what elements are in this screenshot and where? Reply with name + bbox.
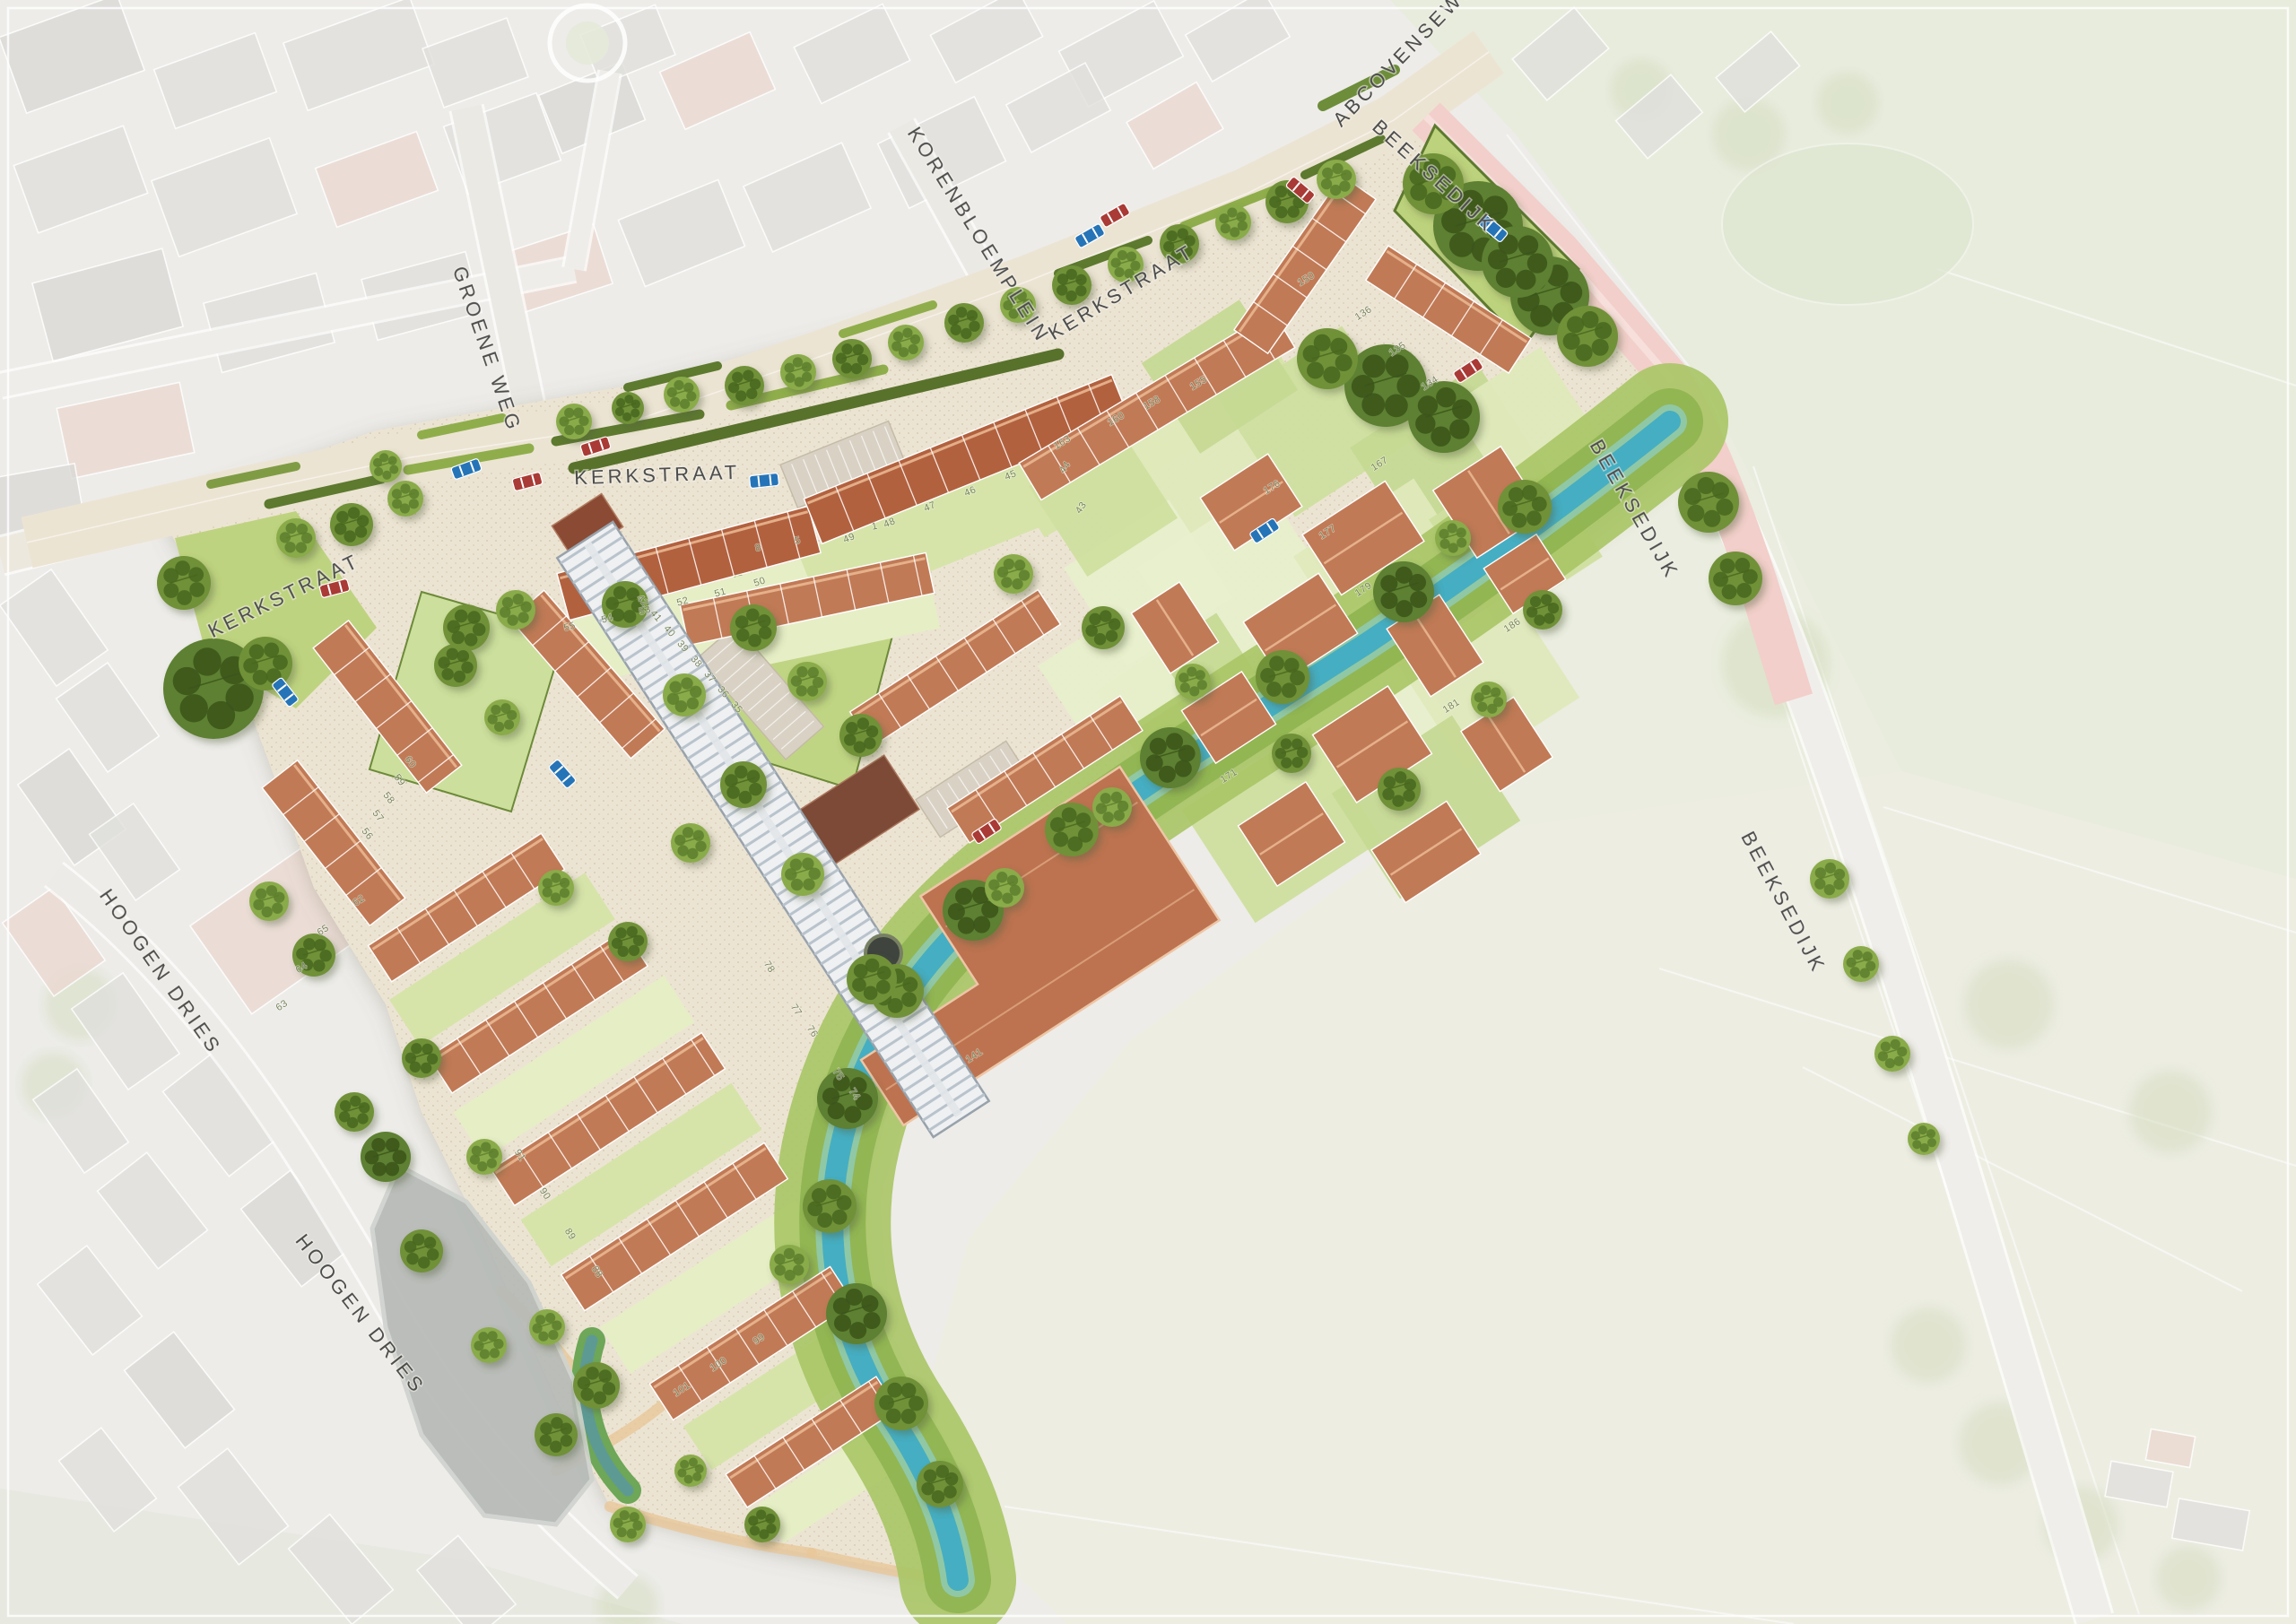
map-shape: [564, 408, 574, 418]
map-shape: [1166, 733, 1183, 750]
map-shape: [540, 1422, 552, 1434]
map-shape: [692, 1472, 701, 1481]
map-shape: [674, 835, 685, 846]
map-shape: [743, 370, 753, 381]
map-shape: [841, 343, 852, 354]
tree-icon: [573, 1362, 620, 1409]
tree-icon: [944, 303, 984, 343]
map-shape: [365, 1151, 379, 1165]
map-shape: [551, 892, 561, 902]
map-shape: [560, 888, 570, 898]
map-shape: [1418, 395, 1438, 415]
map-shape: [899, 347, 909, 357]
map-shape: [846, 722, 857, 734]
map-shape: [1736, 583, 1752, 598]
map-shape: [1100, 793, 1111, 803]
map-shape: [1275, 186, 1287, 197]
tree-icon: [1052, 265, 1091, 305]
map-shape: [1509, 487, 1524, 502]
tree-icon: [1678, 472, 1739, 533]
tree-icon: [535, 1413, 578, 1456]
map-shape: [410, 1062, 421, 1073]
map-shape: [775, 1264, 786, 1275]
map-shape: [1897, 1046, 1907, 1056]
map-shape: [669, 681, 681, 692]
map-shape: [793, 1264, 804, 1275]
map-shape: [615, 927, 626, 938]
map-shape: [828, 1102, 845, 1119]
map-shape: [296, 542, 307, 552]
map-shape: [488, 714, 498, 724]
tree-icon: [730, 604, 777, 651]
map-shape: [613, 586, 627, 600]
map-shape: [851, 363, 862, 374]
map-shape: [1527, 253, 1547, 273]
map-shape: [1146, 754, 1163, 771]
map-shape: [1178, 228, 1188, 239]
map-shape: [340, 1100, 351, 1111]
map-shape: [1341, 169, 1352, 180]
map-shape: [253, 670, 268, 685]
tree-icon: [874, 1376, 928, 1430]
map-shape: [748, 634, 761, 647]
map-shape: [1332, 163, 1343, 174]
map-shape: [1175, 760, 1192, 777]
map-shape: [803, 878, 814, 890]
map-shape: [683, 827, 693, 838]
map-shape: [1187, 666, 1196, 676]
map-shape: [887, 1383, 902, 1398]
map-shape: [1511, 513, 1526, 528]
map-shape: [1541, 594, 1552, 604]
tree-icon: [157, 556, 211, 610]
map-shape: [388, 456, 397, 465]
map-shape: [791, 879, 803, 890]
map-shape: [1010, 885, 1021, 896]
map-shape: [1481, 685, 1491, 695]
map-shape: [406, 1253, 418, 1264]
map-shape: [1180, 682, 1190, 692]
map-shape: [1019, 569, 1030, 580]
map-shape: [490, 1348, 500, 1358]
map-shape: [319, 950, 331, 961]
map-shape: [1927, 1138, 1936, 1147]
map-shape: [627, 1529, 637, 1539]
map-shape: [784, 1248, 795, 1259]
map-shape: [1881, 1041, 1891, 1051]
map-shape: [958, 917, 975, 934]
map-shape: [618, 946, 629, 957]
map-shape: [400, 503, 410, 513]
map-shape: [488, 1331, 498, 1341]
map-shape: [535, 1315, 545, 1324]
map-shape: [735, 766, 748, 779]
map-shape: [750, 1525, 760, 1535]
map-shape: [910, 334, 920, 344]
map-shape: [686, 391, 696, 401]
map-shape: [961, 328, 971, 339]
map-shape: [844, 1106, 861, 1123]
map-shape: [901, 992, 917, 1007]
map-shape: [303, 938, 315, 950]
map-shape: [785, 868, 796, 880]
map-shape: [1282, 682, 1297, 698]
map-shape: [393, 1150, 407, 1164]
map-shape: [1722, 585, 1737, 600]
map-shape: [1885, 1058, 1895, 1068]
tree-icon: [1082, 606, 1125, 649]
map-shape: [627, 926, 638, 937]
tree-icon: [556, 404, 592, 439]
map-shape: [1275, 748, 1286, 759]
map-shape: [1576, 344, 1593, 361]
map-shape: [1100, 610, 1111, 621]
map-shape: [746, 388, 757, 399]
map-shape: [796, 685, 807, 696]
map-shape: [944, 1485, 957, 1498]
map-shape: [849, 1322, 866, 1339]
map-shape: [1814, 879, 1825, 890]
map-shape: [411, 1043, 422, 1054]
tree-icon: [725, 366, 764, 405]
map-shape: [1865, 961, 1875, 971]
map-shape: [969, 321, 979, 332]
map-shape: [1303, 345, 1320, 362]
map-shape: [1395, 771, 1406, 783]
map-shape: [1687, 505, 1704, 522]
map-shape: [765, 1514, 775, 1524]
map-shape: [695, 841, 706, 852]
map-shape: [344, 530, 355, 542]
map-shape: [1050, 817, 1065, 832]
tree-icon: [1471, 682, 1507, 717]
tree-icon: [610, 1507, 646, 1542]
map-shape: [1111, 257, 1121, 267]
tree-icon: [1557, 306, 1618, 367]
map-shape: [441, 668, 453, 680]
map-shape: [350, 1096, 361, 1107]
map-shape: [622, 413, 631, 421]
map-shape: [770, 474, 770, 485]
tree-icon: [781, 853, 824, 896]
map-shape: [932, 1490, 945, 1504]
map-shape: [909, 1396, 924, 1411]
map-shape: [389, 465, 398, 474]
tree-icon: [529, 1309, 565, 1345]
map-shape: [1894, 1056, 1904, 1066]
map-shape: [284, 542, 295, 552]
tree-icon: [663, 673, 706, 716]
tree-icon: [744, 1507, 780, 1542]
map-shape: [272, 903, 283, 914]
map-shape: [866, 725, 878, 737]
map-shape: [935, 1465, 949, 1479]
tree-icon: [1874, 1036, 1910, 1072]
map-shape: [1518, 235, 1538, 255]
map-shape: [1291, 757, 1302, 768]
map-shape: [1452, 399, 1472, 419]
map-shape: [427, 1054, 438, 1064]
map-shape: [893, 331, 903, 341]
map-shape: [180, 694, 208, 722]
map-shape: [500, 703, 510, 713]
map-shape: [956, 307, 967, 317]
map-shape: [732, 372, 743, 383]
map-shape: [793, 357, 803, 367]
map-shape: [1410, 184, 1427, 201]
map-shape: [1684, 488, 1701, 505]
map-shape: [834, 1315, 851, 1332]
map-shape: [748, 1515, 758, 1525]
map-shape: [852, 977, 866, 992]
map-shape: [551, 873, 561, 882]
map-shape: [1053, 832, 1068, 847]
map-shape: [864, 986, 878, 1001]
tree-icon: [1272, 734, 1311, 773]
map-shape: [1238, 221, 1248, 230]
map-shape: [857, 717, 869, 729]
map-shape: [1488, 249, 1508, 269]
map-shape: [357, 1113, 368, 1124]
map-shape: [382, 471, 391, 480]
map-shape: [1703, 510, 1720, 527]
tree-icon: [1908, 1123, 1940, 1155]
map-shape: [1522, 485, 1537, 500]
map-shape: [1001, 577, 1012, 587]
map-shape: [487, 1159, 497, 1168]
map-shape: [812, 1188, 827, 1203]
tree-icon: [612, 392, 644, 424]
map-shape: [1712, 482, 1729, 499]
map-shape: [1178, 745, 1196, 762]
tree-icon: [917, 1461, 963, 1507]
tree-icon: [1523, 590, 1562, 630]
map-shape: [1114, 267, 1124, 277]
map-shape: [689, 1457, 698, 1466]
tree-icon: [994, 554, 1033, 594]
map-shape: [465, 633, 478, 647]
map-shape: [559, 416, 569, 426]
map-shape: [347, 1117, 358, 1128]
map-shape: [629, 945, 639, 956]
map-shape: [1496, 268, 1516, 288]
map-shape: [472, 1146, 482, 1156]
map-shape: [603, 1382, 616, 1395]
tree-icon: [1498, 480, 1552, 534]
tree-icon: [803, 1179, 857, 1233]
tree-icon: [335, 1092, 374, 1132]
map-shape: [616, 398, 625, 407]
map-shape: [617, 1527, 627, 1537]
map-shape: [1911, 1131, 1920, 1140]
map-shape: [1474, 692, 1484, 702]
tree-icon: [1810, 859, 1849, 899]
map-shape: [1920, 1143, 1929, 1152]
map-shape: [736, 629, 750, 642]
map-shape: [667, 387, 677, 397]
map-shape: [385, 1162, 399, 1177]
tree-icon: [1175, 664, 1211, 699]
tree-icon: [402, 1038, 441, 1078]
tree-icon: [1378, 768, 1421, 811]
map-shape: [615, 407, 624, 416]
map-shape: [684, 1475, 693, 1484]
map-shape: [857, 354, 868, 365]
tree-icon: [720, 761, 767, 808]
site-plan-map: 5554535251504948474645444342414039383736…: [0, 0, 2296, 1624]
map-shape: [1448, 523, 1457, 533]
map-shape: [262, 907, 273, 917]
map-shape: [447, 648, 458, 660]
map-shape: [1109, 618, 1120, 630]
map-shape: [620, 1510, 630, 1520]
map-shape: [502, 597, 513, 608]
tree-icon: [1092, 787, 1132, 827]
map-shape: [631, 408, 639, 417]
tree-icon: [443, 604, 490, 651]
map-shape: [1361, 393, 1385, 416]
map-shape: [1362, 354, 1386, 378]
map-shape: [564, 425, 574, 435]
map-shape: [1396, 567, 1413, 584]
map-shape: [747, 770, 761, 784]
map-shape: [746, 608, 760, 621]
map-shape: [813, 677, 823, 688]
map-shape: [687, 848, 698, 859]
map-shape: [264, 643, 279, 658]
map-shape: [1075, 285, 1086, 296]
tree-icon: [276, 518, 316, 558]
map-shape: [864, 1312, 881, 1329]
map-shape: [1592, 339, 1609, 356]
map-shape: [680, 1460, 689, 1469]
map-shape: [1850, 967, 1860, 977]
map-shape: [189, 582, 204, 597]
tree-icon: [538, 870, 574, 906]
map-shape: [313, 960, 325, 971]
map-shape: [1230, 227, 1239, 237]
map-shape: [540, 1434, 552, 1446]
tree-icon: [770, 1245, 809, 1284]
tree-icon: [1435, 520, 1471, 556]
map-shape: [796, 666, 807, 677]
map-shape: [759, 626, 772, 639]
map-shape: [1012, 578, 1022, 589]
map-shape: [400, 483, 410, 493]
map-shape: [802, 372, 812, 382]
map-shape: [455, 610, 468, 623]
map-shape: [674, 380, 683, 390]
map-shape: [520, 602, 531, 612]
map-shape: [427, 1248, 439, 1260]
map-shape: [902, 328, 912, 338]
tree-icon: [370, 450, 402, 482]
map-shape: [1567, 316, 1584, 333]
tree-icon: [985, 868, 1024, 908]
map-shape: [474, 1341, 483, 1350]
map-shape: [997, 567, 1008, 578]
map-shape: [726, 786, 740, 799]
map-shape: [336, 511, 348, 523]
map-shape: [1891, 1039, 1900, 1049]
map-shape: [1847, 958, 1857, 968]
map-shape: [225, 683, 253, 711]
tree-icon: [330, 503, 373, 546]
map-shape: [1530, 305, 1552, 327]
map-shape: [1103, 812, 1114, 822]
map-shape: [951, 325, 961, 335]
map-shape: [1007, 875, 1018, 886]
map-shape: [1150, 738, 1167, 755]
map-shape: [550, 1440, 561, 1452]
map-shape: [841, 362, 852, 373]
map-shape: [675, 700, 687, 712]
tree-icon: [817, 1068, 878, 1129]
map-shape: [477, 1161, 487, 1171]
map-shape: [593, 1392, 606, 1405]
map-shape: [749, 783, 762, 796]
map-shape: [551, 1417, 562, 1429]
tree-icon: [466, 1139, 502, 1175]
map-shape: [418, 1256, 430, 1268]
tree-icon: [832, 339, 872, 378]
map-shape: [758, 476, 759, 487]
map-shape: [623, 610, 637, 623]
map-shape: [249, 644, 265, 659]
map-shape: [1716, 499, 1733, 516]
map-shape: [996, 872, 1007, 882]
map-shape: [826, 1185, 841, 1200]
map-shape: [888, 998, 903, 1013]
map-shape: [921, 1482, 935, 1496]
map-shape: [1167, 230, 1178, 241]
map-shape: [1197, 680, 1207, 690]
map-shape: [1595, 322, 1612, 339]
map-shape: [335, 523, 346, 534]
tree-icon: [780, 354, 816, 390]
map-shape: [728, 382, 739, 393]
tree-icon: [608, 922, 648, 961]
map-shape: [624, 395, 633, 404]
map-shape: [1002, 892, 1013, 903]
map-shape: [504, 719, 514, 729]
map-shape: [948, 315, 959, 326]
map-shape: [1561, 282, 1583, 304]
map-shape: [739, 791, 752, 804]
map-shape: [886, 1409, 901, 1424]
map-shape: [1089, 613, 1100, 625]
map-shape: [355, 525, 367, 537]
tree-icon: [400, 1229, 443, 1272]
tree-icon: [496, 590, 535, 630]
map-shape: [1431, 427, 1450, 447]
map-shape: [1189, 686, 1199, 696]
map-shape: [864, 737, 875, 749]
map-shape: [749, 473, 778, 488]
map-shape: [1825, 863, 1836, 873]
map-shape: [461, 662, 473, 673]
map-shape: [574, 425, 584, 435]
map-shape: [735, 390, 746, 401]
map-shape: [909, 344, 918, 354]
map-shape: [1457, 538, 1466, 548]
map-shape: [404, 1241, 416, 1253]
map-shape: [680, 399, 690, 409]
map-shape: [163, 583, 178, 598]
map-shape: [1266, 682, 1282, 697]
tree-icon: [1373, 561, 1434, 622]
map-shape: [580, 1388, 594, 1402]
